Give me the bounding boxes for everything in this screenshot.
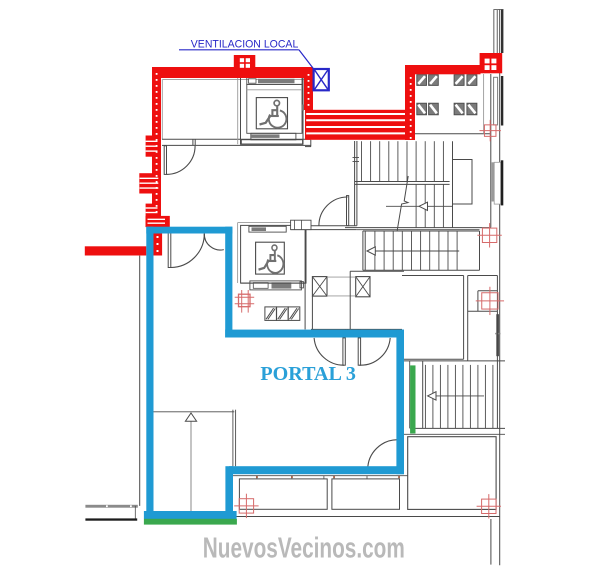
svg-text:PORTAL 3: PORTAL 3 bbox=[260, 364, 356, 385]
svg-text:VENTILACION LOCAL: VENTILACION LOCAL bbox=[191, 38, 298, 50]
svg-text:NuevosVecinos.com: NuevosVecinos.com bbox=[203, 533, 405, 565]
